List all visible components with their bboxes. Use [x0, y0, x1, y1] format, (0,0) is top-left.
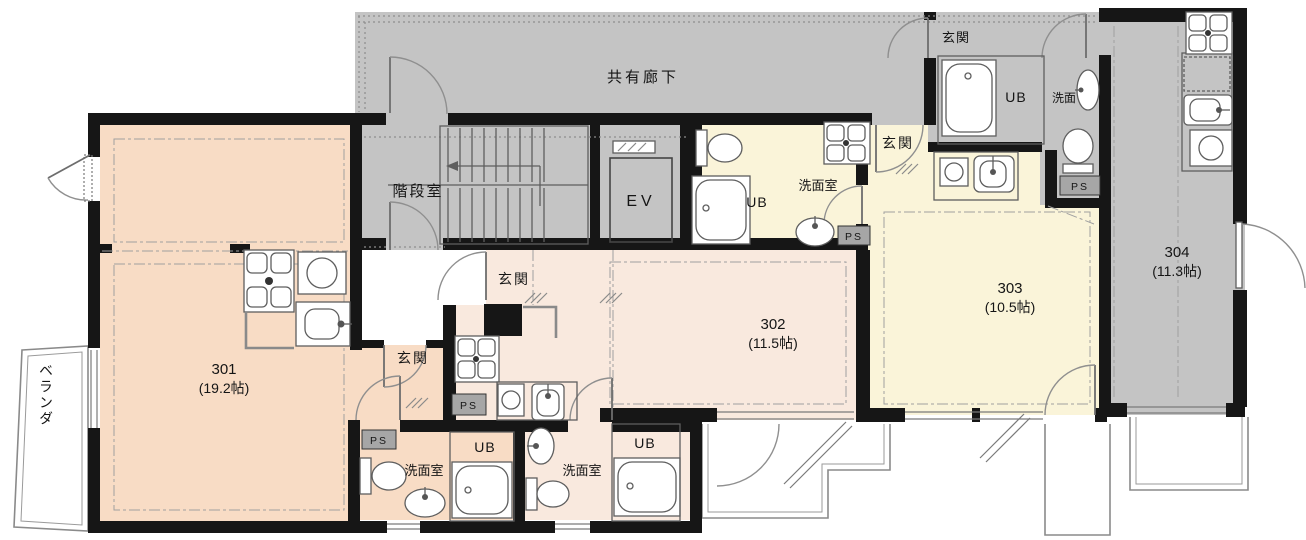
wall-segment	[972, 408, 980, 422]
basin-icon	[527, 428, 554, 464]
pipe-space-label: PS	[1071, 181, 1089, 193]
elevator-label: EV	[626, 193, 655, 210]
washroom-label-301: 洗面室	[404, 463, 443, 478]
toilet-icon	[526, 478, 569, 510]
entry-porch	[372, 250, 443, 345]
wall-segment	[600, 408, 717, 422]
unit-302-number: 302	[760, 316, 785, 333]
washer-icon	[940, 158, 968, 186]
unit-304-number: 304	[1164, 244, 1189, 261]
unit-301-number: 301	[211, 361, 236, 378]
sink-icon	[974, 156, 1014, 192]
wall-segment	[426, 340, 443, 348]
wall-segment	[88, 201, 100, 348]
washroom-label-302: 洗面室	[562, 463, 601, 478]
pipe-space-label: PS	[845, 231, 863, 243]
wall-segment	[1095, 408, 1107, 422]
stove-icon	[1186, 12, 1232, 54]
wall-segment	[1233, 8, 1247, 224]
wall-segment	[484, 304, 522, 336]
wall-segment	[1045, 198, 1105, 208]
unit-bath-label-302: UB	[634, 435, 655, 451]
unit-304-size: (11.3帖)	[1152, 263, 1202, 279]
elevator-door	[613, 141, 655, 153]
pipe-space-label: PS	[370, 435, 388, 447]
entrance-label-302: 玄関	[498, 271, 530, 287]
corridor-label: 共有廊下	[607, 69, 679, 86]
floorplan-canvas: 共有廊下 階段室 EV ベランダ 玄関 玄関 玄関 玄関 洗面室 洗面室 洗面室…	[0, 0, 1306, 540]
toilet-icon	[1063, 129, 1093, 173]
unit-bath-label-304: UB	[1005, 89, 1026, 105]
terrace-302	[702, 424, 890, 518]
sink-icon	[296, 302, 352, 346]
floorplan-drawing: 共有廊下 階段室 EV ベランダ 玄関 玄関 玄関 玄関 洗面室 洗面室 洗面室…	[0, 0, 1306, 540]
wall-segment	[88, 113, 374, 125]
wall-segment	[448, 113, 690, 125]
wall-segment	[348, 420, 360, 533]
unit-301-size: (19.2帖)	[199, 380, 250, 396]
wall-segment	[88, 244, 112, 253]
washer-icon	[1190, 130, 1232, 166]
sink-icon	[1184, 95, 1232, 125]
wall-segment	[1226, 403, 1245, 417]
wall-segment	[443, 305, 456, 345]
wall-segment	[362, 238, 386, 250]
washer-icon	[498, 384, 524, 416]
wall-segment	[88, 113, 100, 157]
wall-segment	[362, 113, 386, 125]
washer-icon	[298, 252, 346, 294]
wall-segment	[590, 521, 702, 533]
entrance-label-304: 玄関	[942, 30, 970, 45]
wall-segment	[868, 408, 905, 422]
bathtub-icon	[692, 176, 750, 244]
wall-segment	[362, 340, 384, 348]
balcony-304	[1130, 417, 1248, 490]
wall-segment	[1099, 125, 1111, 415]
entrance-label-303: 玄関	[882, 135, 914, 151]
wall-segment	[856, 250, 870, 422]
veranda-label: ベランダ	[38, 363, 54, 427]
wall-segment	[443, 340, 456, 432]
wall-segment	[1099, 55, 1111, 125]
stove-icon	[455, 336, 499, 382]
bathtub-icon	[452, 462, 512, 518]
stove-icon	[824, 122, 870, 164]
stairwell-label: 階段室	[392, 183, 443, 200]
wall-segment	[1105, 403, 1127, 417]
wall-segment	[680, 125, 690, 238]
unit-bath-label-303: UB	[746, 194, 767, 210]
door-swing-304-exterior	[1236, 222, 1305, 288]
wall-segment	[513, 432, 525, 533]
unit-bath-label-301: UB	[474, 439, 495, 455]
sink-icon	[532, 384, 564, 420]
washbasin-label-304: 洗面	[1052, 91, 1076, 105]
unit-304-room	[1105, 12, 1245, 415]
wall-segment	[88, 521, 387, 533]
wall-segment	[420, 521, 555, 533]
wall-segment	[400, 420, 525, 432]
wall-segment	[1045, 150, 1057, 202]
unit-303-size: (10.5帖)	[985, 299, 1036, 315]
entry-screen	[84, 155, 92, 201]
unit-302-size: (11.5帖)	[748, 335, 798, 351]
bathtub-icon	[942, 60, 996, 136]
wall-segment	[690, 415, 702, 533]
balcony-303	[1045, 424, 1110, 535]
stove-icon	[244, 250, 294, 312]
wall-segment	[590, 125, 600, 238]
wall-segment	[350, 250, 362, 350]
wall-segment	[88, 428, 100, 533]
wall-segment	[924, 58, 936, 125]
pipe-space-label: PS	[460, 400, 478, 412]
bathtub-icon	[614, 458, 680, 516]
entrance-label-301: 玄関	[397, 350, 429, 366]
wall-segment	[350, 113, 362, 250]
washroom-label-303: 洗面室	[798, 178, 837, 193]
wall-segment	[1233, 290, 1247, 407]
unit-303-number: 303	[997, 280, 1022, 297]
